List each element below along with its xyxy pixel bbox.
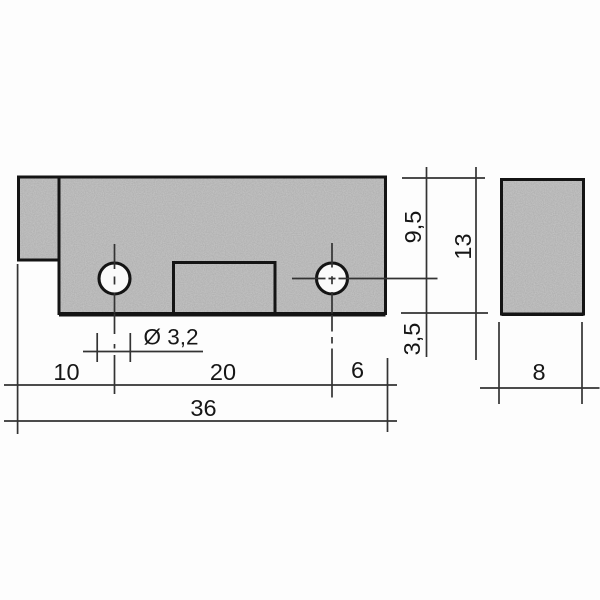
svg-text:6: 6 (351, 357, 364, 383)
svg-text:8: 8 (532, 359, 545, 385)
svg-text:13: 13 (450, 233, 476, 259)
svg-text:10: 10 (53, 359, 79, 385)
svg-text:36: 36 (190, 395, 216, 421)
svg-text:Ø 3,2: Ø 3,2 (144, 325, 199, 350)
svg-text:9,5: 9,5 (400, 211, 426, 244)
svg-text:20: 20 (210, 359, 236, 385)
svg-text:3,5: 3,5 (399, 323, 425, 356)
